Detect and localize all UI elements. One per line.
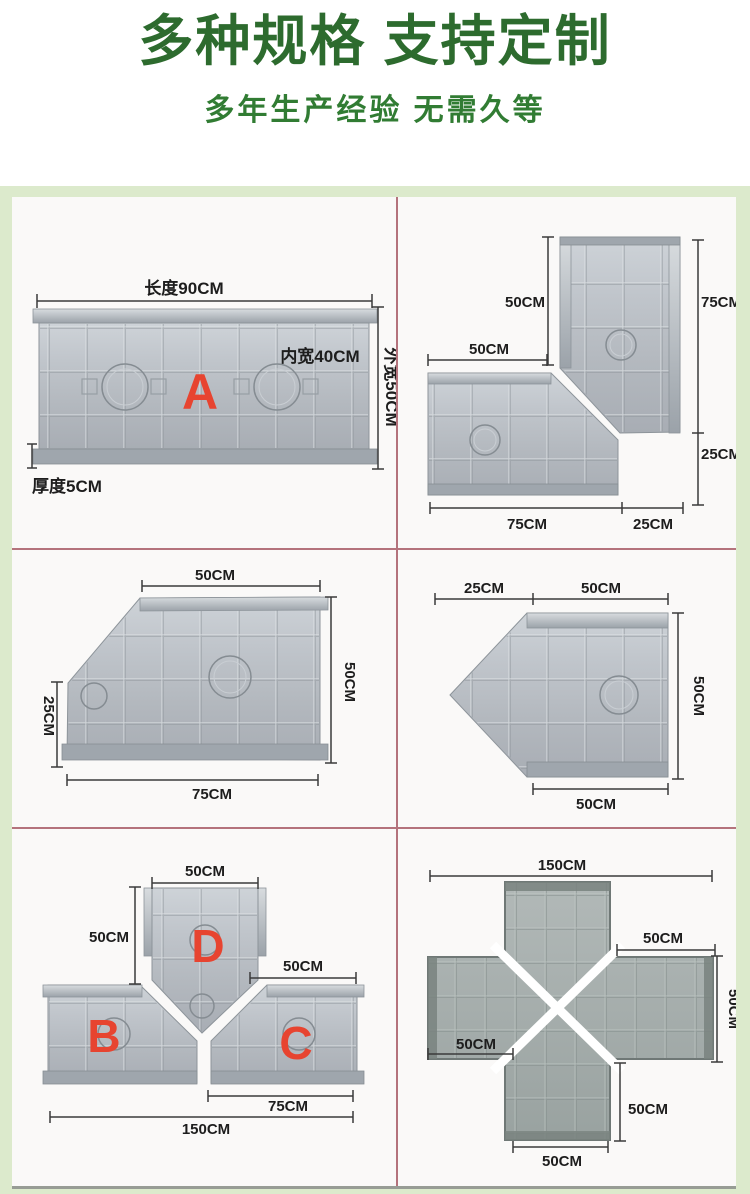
dim-pointed-bottom: 50CM (576, 796, 616, 813)
dim-thickness-label: 厚度5CM (32, 476, 102, 496)
dim-tee-bottom-right: 75CM (268, 1098, 308, 1115)
dim-length-label: 长度90CM (144, 278, 223, 298)
spec-grid: 长度90CM A 内宽40CM (12, 197, 736, 1189)
dim-cross-bottom-right-line (614, 1063, 626, 1141)
tee-svg: B C D 50CM 50CM (12, 828, 397, 1186)
dim-beveled-top: 50CM (195, 567, 235, 584)
dim-beveled-bottom-line (67, 774, 318, 786)
page-subtitle: 多年生产经验 无需久等 (0, 94, 750, 128)
diagram-straight-a: 长度90CM A 内宽40CM (12, 197, 397, 549)
dim-beveled-right: 50CM (341, 662, 358, 702)
dim-tee-left-line (129, 887, 141, 984)
dim-corner-right-upper: 75CM (701, 294, 736, 311)
diagram-corner: 50CM 50CM 75CM 25CM (397, 197, 736, 549)
dim-beveled-bottom: 75CM (192, 786, 232, 803)
dim-tee-right: 50CM (283, 958, 323, 975)
piece-label-d: D (191, 920, 224, 972)
dim-pointed-right-line (672, 613, 684, 779)
dim-tee-left: 50CM (89, 929, 129, 946)
dim-pointed-top-right: 50CM (581, 580, 621, 597)
dim-corner-right-line (692, 240, 704, 505)
diagram-cross: 150CM 50CM 50CM (397, 828, 736, 1186)
dim-pointed-right: 50CM (690, 676, 707, 716)
diagram-beveled: 50CM 25CM 50CM (12, 549, 397, 828)
piece-label-b: B (87, 1010, 120, 1062)
dim-corner-left-width: 50CM (469, 341, 509, 358)
dim-cross-right: 50CM (725, 989, 736, 1029)
dim-cross-top-total: 150CM (538, 857, 586, 874)
header: 多种规格 支持定制 多年生产经验 无需久等 (0, 0, 750, 186)
dim-tee-top: 50CM (185, 863, 225, 880)
dim-corner-bottom-line (430, 502, 683, 514)
mold-piece-cross (428, 882, 713, 1140)
diagram-pointed: 25CM 50CM 50CM 50CM (397, 549, 736, 828)
diagram-tee: B C D 50CM 50CM (12, 828, 397, 1186)
piece-label-a: A (182, 364, 218, 420)
dim-cross-bottom-right: 50CM (628, 1101, 668, 1118)
dim-outer-width-label: 外宽50CM (382, 347, 397, 426)
dim-corner-bottom-right: 25CM (633, 516, 673, 533)
dim-pointed-bottom-line (533, 783, 668, 795)
cross-svg: 150CM 50CM 50CM (397, 828, 736, 1186)
dim-corner-bottom-left: 75CM (507, 516, 547, 533)
beveled-svg: 50CM 25CM 50CM (12, 549, 397, 828)
dim-cross-bottom: 50CM (542, 1153, 582, 1170)
dim-pointed-top-left: 25CM (464, 580, 504, 597)
piece-label-c: C (279, 1017, 312, 1069)
mold-piece-beveled (62, 597, 328, 760)
page-title: 多种规格 支持定制 (0, 10, 750, 72)
dim-cross-left: 50CM (456, 1036, 496, 1053)
dim-tee-bottom-total: 150CM (182, 1121, 230, 1138)
mold-piece-pointed (450, 613, 668, 777)
dim-beveled-left: 25CM (40, 696, 57, 736)
straight-a-svg: 长度90CM A 内宽40CM (12, 197, 397, 549)
dim-corner-right-lower: 25CM (701, 446, 736, 463)
dim-cross-top-right: 50CM (643, 930, 683, 947)
dim-inner-width-label: 内宽40CM (280, 346, 359, 366)
dim-corner-top-width: 50CM (505, 294, 545, 311)
product-spec-page: 多种规格 支持定制 多年生产经验 无需久等 长度90CM (0, 0, 750, 1194)
dim-cross-bottom-line (513, 1141, 608, 1153)
dim-beveled-right-line (325, 597, 337, 763)
corner-svg: 50CM 50CM 75CM 25CM (397, 197, 736, 549)
spec-board: 长度90CM A 内宽40CM (0, 186, 750, 1194)
pointed-svg: 25CM 50CM 50CM 50CM (397, 549, 736, 828)
